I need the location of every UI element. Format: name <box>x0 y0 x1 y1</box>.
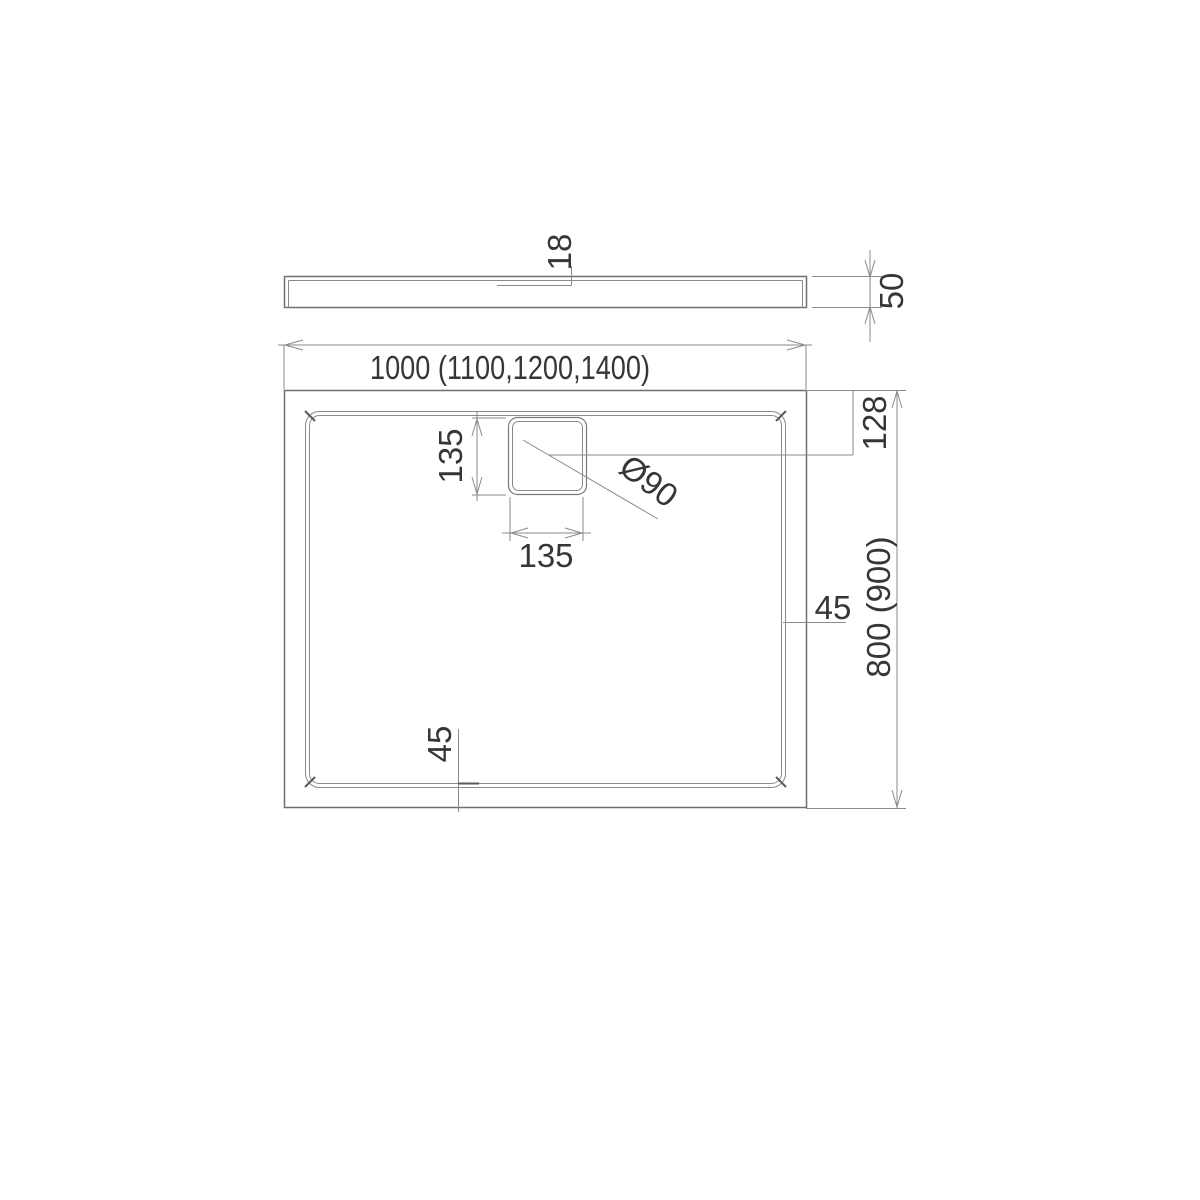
drain-cover-outer <box>509 418 587 495</box>
dim-drain-diameter-label: Ø90 <box>613 447 685 514</box>
dim-rim-width-right-label: 45 <box>815 589 852 626</box>
dim-height-label: 50 <box>873 273 910 310</box>
height-extension-lines <box>812 277 882 308</box>
dim-top-thickness-label: 18 <box>541 234 578 271</box>
dim-rim-width-bottom-label: 45 <box>421 726 458 763</box>
side-view: 18 50 <box>285 234 911 342</box>
dim-drain-offset-label: 128 <box>856 395 893 450</box>
dim-drain-width-label: 135 <box>518 537 573 574</box>
drain-offset-lines <box>549 390 853 455</box>
side-view-profile <box>285 277 807 308</box>
technical-drawing-page: 18 50 1000 (1100,1200,1400) <box>0 0 1200 1200</box>
drain-width-extension-lines <box>510 497 583 541</box>
side-view-inner-edges <box>289 281 803 308</box>
dim-overall-width-label: 1000 (1100,1200,1400) <box>370 349 650 386</box>
shower-tray-dimension-drawing: 18 50 1000 (1100,1200,1400) <box>0 0 1200 1200</box>
plan-view: 1000 (1100,1200,1400) Ø90 128 135 <box>278 340 906 812</box>
dim-overall-depth-label: 800 (900) <box>860 536 897 677</box>
dim-drain-height-label: 135 <box>432 428 469 483</box>
